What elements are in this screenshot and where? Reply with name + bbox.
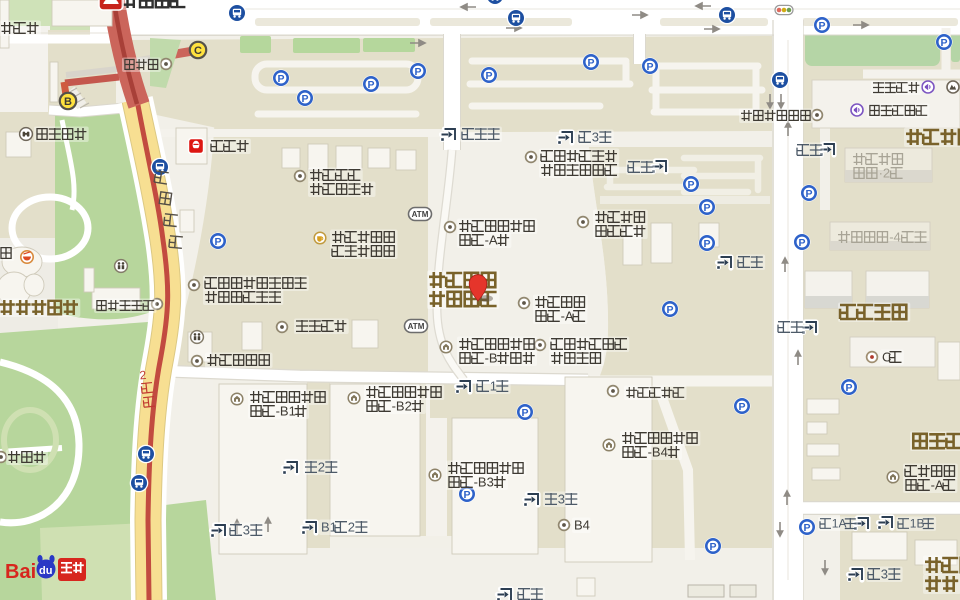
svg-text:1: 1 <box>490 378 497 393</box>
svg-text:-A: -A <box>485 232 498 247</box>
svg-text:-A: -A <box>931 477 944 492</box>
svg-text:P: P <box>646 61 653 73</box>
svg-text:-A: -A <box>561 308 574 323</box>
svg-text:P: P <box>521 407 528 419</box>
svg-text:P: P <box>463 489 470 501</box>
svg-text:P: P <box>666 304 673 316</box>
svg-text:C: C <box>194 45 202 57</box>
svg-text:P: P <box>703 238 710 250</box>
svg-text:2: 2 <box>348 519 355 534</box>
svg-text:P: P <box>687 179 694 191</box>
svg-text:1B: 1B <box>910 517 925 531</box>
svg-text:P: P <box>805 188 812 200</box>
svg-text:P: P <box>414 66 421 78</box>
svg-text:B4: B4 <box>574 517 590 532</box>
svg-text:3: 3 <box>243 522 250 537</box>
svg-text:-4: -4 <box>889 229 901 244</box>
svg-text:P: P <box>709 541 716 553</box>
svg-text:3: 3 <box>881 566 888 581</box>
svg-text:P: P <box>703 202 710 214</box>
svg-text:Bai: Bai <box>5 561 36 583</box>
svg-text:ATM: ATM <box>412 210 429 219</box>
svg-text:du: du <box>39 565 52 577</box>
svg-text:P: P <box>277 73 284 85</box>
svg-text:1A: 1A <box>832 517 847 531</box>
svg-text:3: 3 <box>558 491 565 506</box>
svg-text:-B: -B <box>485 350 498 365</box>
svg-text:-B4: -B4 <box>648 444 668 459</box>
svg-text:P: P <box>803 522 810 534</box>
svg-text:3: 3 <box>592 129 599 144</box>
svg-text:P: P <box>367 79 374 91</box>
svg-text:P: P <box>214 236 221 248</box>
svg-text:2: 2 <box>318 459 325 474</box>
svg-text:P: P <box>485 70 492 82</box>
svg-text:P: P <box>587 57 594 69</box>
svg-text:P: P <box>940 37 947 49</box>
svg-text:-B3: -B3 <box>474 474 494 489</box>
svg-text:P: P <box>818 20 825 32</box>
svg-text:P: P <box>798 237 805 249</box>
svg-text:·2: ·2 <box>879 165 891 180</box>
svg-text:P: P <box>301 93 308 105</box>
svg-text:B: B <box>64 96 72 108</box>
svg-text:-B1: -B1 <box>276 403 296 418</box>
svg-text:-B2: -B2 <box>392 398 412 413</box>
svg-text:P: P <box>845 382 852 394</box>
svg-text:ATM: ATM <box>408 322 425 331</box>
svg-text:P: P <box>738 401 745 413</box>
